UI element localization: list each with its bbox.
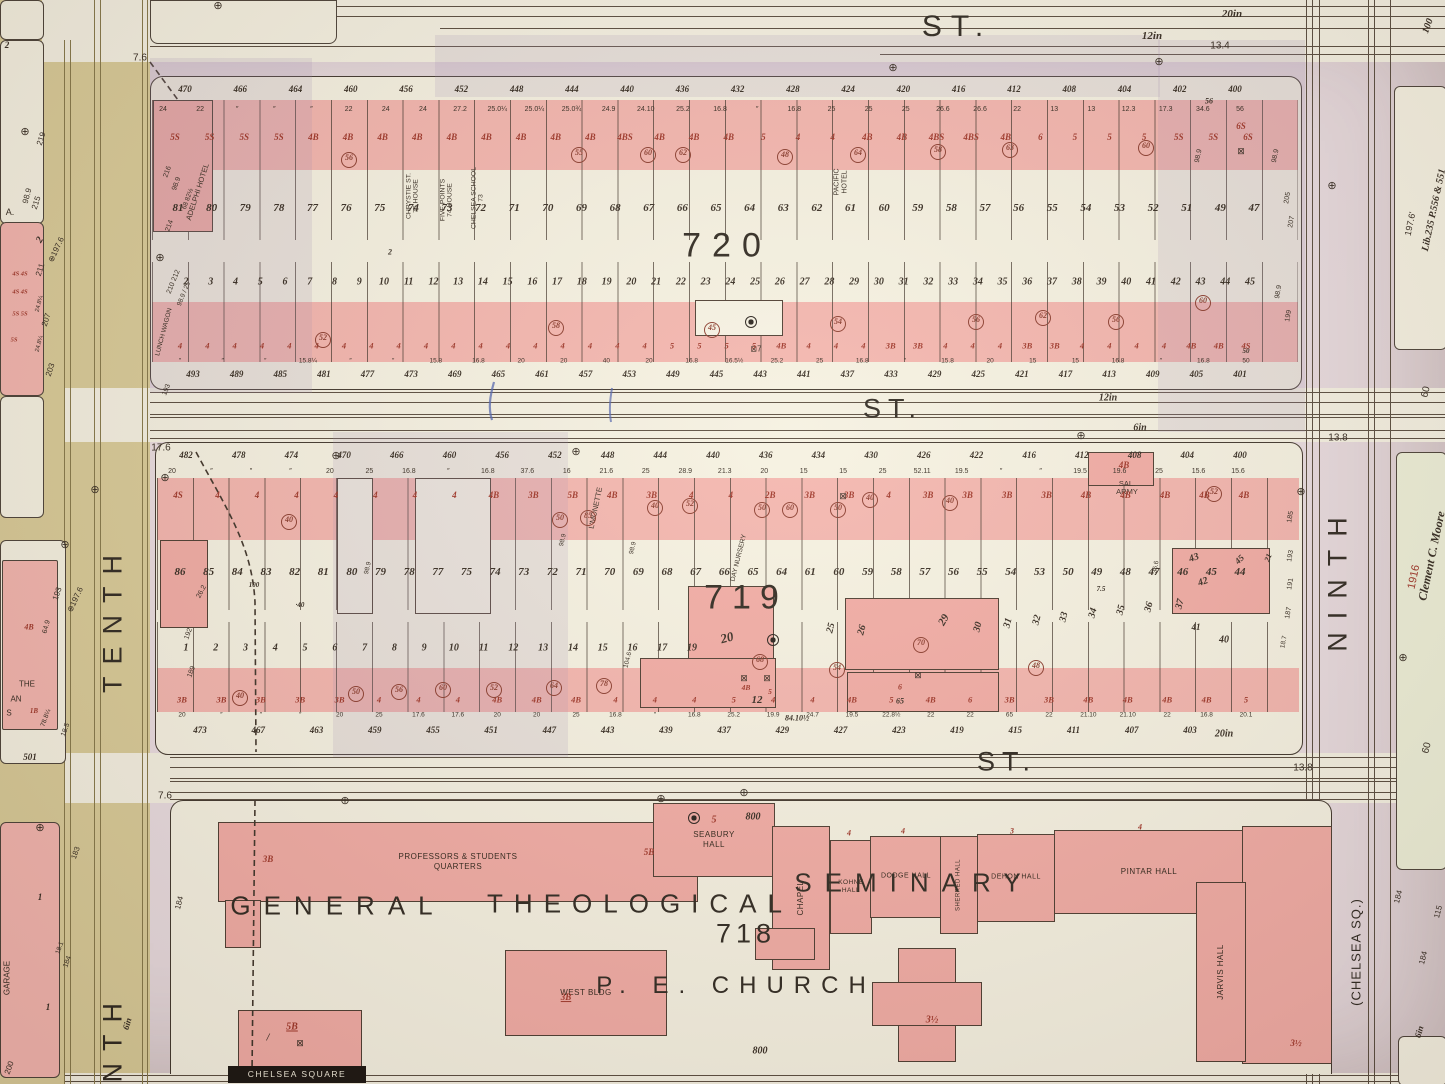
b720-story: 5S	[205, 133, 215, 143]
b720-story: 3B	[1022, 341, 1032, 350]
b719-house-number: 463	[310, 726, 324, 736]
b720-lot-width: ″	[904, 357, 906, 364]
b720-story: 4	[615, 341, 619, 350]
survey-circle-number: 60	[640, 147, 656, 163]
b720-story: 4B	[897, 133, 908, 143]
b720-lot-width: 16.8	[1197, 357, 1210, 364]
map-annotation: 3½	[1290, 1039, 1301, 1049]
b719-story: 4	[810, 695, 814, 704]
map-annotation: 41	[1192, 623, 1201, 633]
b719-story: 4	[456, 695, 460, 704]
b719-house-number: 416	[1022, 451, 1036, 461]
b719-story: 4B	[1120, 491, 1131, 501]
b719-story: 4B	[489, 491, 500, 501]
b719-house-number: 436	[759, 451, 773, 461]
b720-lot-width: 15	[1029, 357, 1036, 364]
b720-lot-number: 65	[711, 202, 722, 214]
b720-house-number: 404	[1118, 85, 1132, 95]
b719-lot-width: 16.8	[688, 711, 701, 718]
b719-story: 3B	[177, 695, 187, 704]
b719-story: 4	[886, 491, 891, 501]
b719-story: 4	[692, 695, 696, 704]
b719-lot-number: 6	[332, 643, 337, 654]
map-annotation: 6in	[1133, 423, 1146, 434]
b719-lot-number: 7	[362, 643, 367, 654]
b719-story: 3B	[335, 695, 345, 704]
chelsea-square-note: (CHELSEA SQ.)	[1349, 898, 1364, 1006]
b720-lot-number: 69	[576, 202, 587, 214]
b720-lot-number: 13	[453, 277, 463, 288]
b719-lot-width: 22	[1045, 711, 1052, 718]
map-annotation: 2	[388, 249, 392, 258]
b719-lot-number: 73	[518, 566, 529, 578]
map-annotation: A.	[6, 208, 15, 218]
map-annotation: ⊠	[296, 1039, 304, 1049]
b720-lot-number: 2	[184, 277, 189, 288]
survey-circle-number: 48	[1028, 660, 1044, 676]
b719-lot-number: 4	[273, 643, 278, 654]
b720-story: 4B	[412, 133, 423, 143]
b720-story: 4	[998, 341, 1002, 350]
map-annotation: ·40	[296, 602, 305, 610]
b719-lot-number: 11	[479, 643, 488, 654]
b720-lot-width: 16.8	[1112, 357, 1125, 364]
map-annotation: 100	[249, 582, 260, 590]
b720-lot-number: 23	[701, 277, 711, 288]
b720-lot-number: 67	[643, 202, 654, 214]
monument-crosshair-icon: ⊕	[35, 822, 44, 834]
map-annotation: 6S	[1236, 122, 1246, 132]
crossed-box-symbol: ⊠	[839, 492, 847, 502]
b720-lot-number: 58	[946, 202, 957, 214]
survey-circle-number: 45	[704, 322, 720, 338]
b720-lot-width: 25.2	[676, 106, 690, 114]
b719-house-number: 430	[864, 451, 878, 461]
b720-lot-width: 20	[517, 357, 524, 364]
b720-house-number: 440	[620, 85, 634, 95]
b719-lot-width: 28.9	[678, 468, 692, 476]
b720-house-number: 436	[676, 85, 690, 95]
b719-lot-number: 80	[346, 566, 357, 578]
survey-circle-number: 54	[829, 662, 845, 678]
b720-story: 3B	[913, 341, 923, 350]
b720-lot-number: 80	[206, 202, 217, 214]
survey-circle-number: 62	[675, 147, 691, 163]
tank-dot-symbol	[767, 634, 779, 646]
tank-dot-symbol	[688, 812, 700, 824]
b720-house-number: 449	[666, 370, 680, 380]
b720-house-number: 460	[344, 85, 358, 95]
b719-story: 4B	[607, 491, 618, 501]
b720-story: 4	[205, 341, 209, 350]
survey-circle-number: 40	[281, 514, 297, 530]
b720-story: 4B	[377, 133, 388, 143]
b720-lot-number: 55	[1047, 202, 1058, 214]
b720-lot-width: 24	[159, 106, 167, 114]
b720-lot-width: ″	[179, 357, 181, 364]
b720-lot-width: 15	[1072, 357, 1079, 364]
survey-circle-number: 40	[647, 500, 663, 516]
b719-lot-number: 83	[260, 566, 271, 578]
b719-lot-number: 3	[243, 643, 248, 654]
b720-story: 4	[369, 341, 373, 350]
b719-story: 3B	[1005, 695, 1015, 704]
b719-story: 4	[334, 491, 339, 501]
b720-story: 4B	[516, 133, 527, 143]
b719-story: 4	[377, 695, 381, 704]
survey-circle-number: 52	[486, 682, 502, 698]
b719-story: 4B	[1123, 695, 1133, 704]
b720-lot-width: ″	[221, 357, 223, 364]
b719-lot-width: 22	[927, 711, 934, 718]
b720-story: 4	[1135, 341, 1139, 350]
map-annotation: 5	[712, 815, 717, 826]
monument-crosshair-icon: ⊕	[1296, 486, 1305, 498]
b720-lot-number: 47	[1249, 202, 1260, 214]
map-annotation: 4B	[24, 624, 33, 633]
map-annotation: 1	[46, 1003, 51, 1013]
b719-lot-width: 37.6	[521, 468, 535, 476]
b720-house-number: 466	[234, 85, 248, 95]
b719-story: 4S	[173, 491, 183, 501]
b720-lot-number: 77	[307, 202, 318, 214]
b720-story: 4B	[776, 341, 786, 350]
b719-story: 4B	[1081, 491, 1092, 501]
b720-lot-width: 22	[1013, 106, 1021, 114]
seminary-name-word1: GENERAL	[230, 891, 445, 922]
b720-house-number: 416	[952, 85, 966, 95]
survey-circle-number: 63	[1002, 142, 1018, 158]
b720-house-number: 470	[178, 85, 192, 95]
map-annotation: 4S 4S	[12, 270, 27, 277]
b719-house-number: 459	[368, 726, 382, 736]
survey-circle-number: 78	[596, 678, 612, 694]
atlas-map-scan: ST. ST. ST. 720 719 718 TENTH TENTH NINT…	[0, 0, 1445, 1084]
b720-house-number: 448	[510, 85, 524, 95]
monument-crosshair-icon: ⊕	[160, 472, 169, 484]
monument-crosshair-icon: ⊕	[213, 0, 222, 12]
survey-circle-number: 60	[435, 682, 451, 698]
b719-lot-number: 17	[657, 643, 667, 654]
b719-story: 4B	[1162, 695, 1172, 704]
b719-lot-number: 85	[203, 566, 214, 578]
b719-lot-width: 21.10	[1080, 711, 1096, 718]
b720-lot-width: 16.8	[472, 357, 485, 364]
b719-house-number: 407	[1125, 726, 1139, 736]
b720-house-number: 464	[289, 85, 303, 95]
map-annotation: 3B	[263, 855, 274, 865]
b720-story: 4	[178, 341, 182, 350]
b719-lot-width: ″	[654, 711, 656, 718]
survey-circle-number: 52	[315, 332, 331, 348]
b719-story: 4	[613, 695, 617, 704]
b720-lot-number: 51	[1181, 202, 1192, 214]
survey-circle-number: 62	[1035, 310, 1051, 326]
map-annotation: 12	[752, 694, 763, 706]
b720-lot-width: 40	[603, 357, 610, 364]
b720-house-number: 493	[186, 370, 200, 380]
b720-lot-number: 53	[1114, 202, 1125, 214]
b720-house-number: 429	[928, 370, 942, 380]
map-annotation: 6	[898, 684, 902, 693]
b719-lot-number: 65	[747, 566, 758, 578]
b720-story: 5	[1073, 133, 1078, 143]
survey-circle-number: 70	[913, 637, 929, 653]
b720-lot-width: ″	[392, 357, 394, 364]
survey-circle-number: 56	[391, 684, 407, 700]
b719-lot-number: 47	[1149, 566, 1160, 578]
b719-story: 5	[732, 695, 736, 704]
survey-circle-number: 64	[850, 147, 866, 163]
b720-story: 4	[533, 341, 537, 350]
b720-story: 4	[233, 341, 237, 350]
b720-lot-number: 81	[173, 202, 184, 214]
b720-lot-width: ″	[756, 106, 758, 114]
b719-lot-width: ″	[260, 711, 262, 718]
b719-lot-number: 64	[776, 566, 787, 578]
map-annotation: 13.4	[1210, 41, 1229, 52]
b720-house-number: 413	[1102, 370, 1116, 380]
map-annotation: 5S	[11, 336, 18, 343]
b719-story: 2B	[765, 491, 776, 501]
b720-story: 6	[1038, 133, 1043, 143]
ink-mark	[490, 382, 494, 420]
b719-house-number: 411	[1067, 726, 1080, 736]
b720-lot-width: 56	[1236, 106, 1244, 114]
b720-house-number: 457	[579, 370, 593, 380]
b719-lot-number: 50	[1063, 566, 1074, 578]
b720-lot-number: 19	[602, 277, 612, 288]
b719-lot-number: 5	[303, 643, 308, 654]
b720-house-number: 477	[361, 370, 375, 380]
b719-house-number: 443	[601, 726, 615, 736]
map-annotation: 5B	[286, 1022, 298, 1033]
b719-lot-number: 66	[719, 566, 730, 578]
b719-house-number: 452	[548, 451, 562, 461]
map-annotation: 20in	[1215, 729, 1233, 740]
b720-house-number: 485	[274, 370, 288, 380]
b719-lot-number: 74	[490, 566, 501, 578]
monument-crosshair-icon: ⊕	[656, 793, 665, 805]
b719-house-number: 448	[601, 451, 615, 461]
b720-lot-width: 16.8	[713, 106, 727, 114]
b719-lot-width: 21.6	[599, 468, 613, 476]
b720-lot-width: 20	[987, 357, 994, 364]
plate-title-box: CHELSEA SQUARE	[228, 1066, 366, 1083]
b720-lot-number: 17	[552, 277, 562, 288]
b719-house-number: 456	[495, 451, 509, 461]
b720-story: 6S	[1243, 133, 1253, 143]
map-annotation: 12in	[1099, 393, 1117, 404]
map-annotation: 501	[23, 753, 37, 763]
map-annotation: 7.5	[1097, 586, 1106, 594]
b719-story: 4	[416, 695, 420, 704]
b719-lot-number: 78	[404, 566, 415, 578]
block-number-718: 718	[716, 919, 776, 950]
b720-story: 4	[561, 341, 565, 350]
survey-circle-number: 40	[942, 495, 958, 511]
b720-lot-number: 14	[478, 277, 488, 288]
b720-lot-width: 16.5½	[725, 357, 743, 364]
b720-lot-number: 35	[998, 277, 1008, 288]
b719-story: 4B	[1160, 491, 1171, 501]
b720-story: 5	[670, 341, 674, 350]
map-annotation: S	[6, 710, 11, 719]
b719-house-number: 451	[484, 726, 498, 736]
b720-lot-number: 16	[527, 277, 537, 288]
b719-lot-width: 19.5	[955, 468, 969, 476]
b720-lot-width: 13	[1050, 106, 1058, 114]
block-number-720: 720	[682, 227, 772, 266]
b720-lot-width: 24	[419, 106, 427, 114]
b719-story: 5B	[568, 491, 579, 501]
b719-story: 4B	[847, 695, 857, 704]
b720-lot-number: 33	[948, 277, 958, 288]
b720-lot-number: 62	[811, 202, 822, 214]
b719-house-number: 455	[426, 726, 440, 736]
b720-story: 4	[479, 341, 483, 350]
b720-lot-width: 17.3	[1159, 106, 1173, 114]
b719-story: 4	[413, 491, 418, 501]
b720-lot-width: ″	[310, 106, 312, 114]
b720-house-number: 405	[1190, 370, 1204, 380]
b719-lot-width: 20	[178, 711, 185, 718]
b719-house-number: 426	[917, 451, 931, 461]
b720-lot-number: 74	[408, 202, 419, 214]
b719-lot-width: 20	[336, 711, 343, 718]
b720-lot-width: 25.0¼	[525, 106, 544, 114]
b720-lot-number: 36	[1022, 277, 1032, 288]
b720-lot-width: 27.2	[453, 106, 467, 114]
b720-lot-number: 5	[258, 277, 263, 288]
b720-lot-width: 16.8	[685, 357, 698, 364]
b720-house-number: 481	[317, 370, 331, 380]
b720-lot-number: 22	[676, 277, 686, 288]
b719-story: 3B	[804, 491, 815, 501]
b720-lot-number: 56	[1013, 202, 1024, 214]
b719-lot-width: 15	[839, 468, 847, 476]
b719-house-number: 474	[285, 451, 299, 461]
map-annotation: 7.6	[158, 791, 172, 802]
b719-lot-width: ″	[210, 468, 212, 476]
street-label-lower: ST.	[977, 747, 1037, 778]
b719-lot-width: 25	[375, 711, 382, 718]
b720-story: 4B	[1186, 341, 1196, 350]
boundary-dash	[196, 452, 256, 752]
b719-lot-width: ″	[447, 468, 449, 476]
b719-house-number: 423	[892, 726, 906, 736]
b720-house-number: 409	[1146, 370, 1160, 380]
b719-lot-width: 25	[366, 468, 374, 476]
b719-house-number: 400	[1233, 451, 1247, 461]
b720-lot-number: 70	[542, 202, 553, 214]
b720-lot-number: 30	[874, 277, 884, 288]
b720-lot-width: 25.0¾	[562, 106, 581, 114]
survey-circle-number: 60	[1138, 140, 1154, 156]
b720-story: 4	[506, 341, 510, 350]
b719-lot-number: 12	[508, 643, 518, 654]
map-annotation: 800	[746, 812, 761, 823]
b719-lot-width: 17.6	[452, 711, 465, 718]
b720-story: 5	[752, 341, 756, 350]
b719-lot-width: 16.8	[402, 468, 416, 476]
b720-story: 4	[807, 341, 811, 350]
ink-mark	[610, 388, 612, 422]
b720-story: 5S	[239, 133, 249, 143]
b719-lot-width: ″	[1000, 468, 1002, 476]
b720-lot-number: 44	[1220, 277, 1230, 288]
b720-lot-number: 43	[1196, 277, 1206, 288]
b720-lot-width: 26.6	[973, 106, 987, 114]
b720-lot-width: 15.8	[941, 357, 954, 364]
b719-house-number: 460	[443, 451, 457, 461]
monument-crosshair-icon: ⊕	[20, 126, 29, 138]
survey-circle-number: 48	[777, 149, 793, 165]
b719-lot-width: 20	[326, 468, 334, 476]
b719-lot-width: 15.6	[1192, 468, 1206, 476]
b719-house-number: 434	[812, 451, 826, 461]
b720-story: 5S	[1174, 133, 1184, 143]
b719-lot-number: 81	[318, 566, 329, 578]
b719-lot-width: 25	[879, 468, 887, 476]
b719-lot-number: 86	[175, 566, 186, 578]
b719-lot-width: ″	[220, 711, 222, 718]
b720-lot-number: 20	[626, 277, 636, 288]
map-annotation: /	[267, 1033, 270, 1044]
b719-house-number: 403	[1183, 726, 1197, 736]
b719-lot-width: 19.9	[767, 711, 780, 718]
monument-crosshair-icon: ⊕	[331, 450, 340, 462]
b719-lot-width: 16	[563, 468, 571, 476]
b720-story: 5	[1107, 133, 1112, 143]
survey-circle-number: 60	[1195, 295, 1211, 311]
avenue-label-ninth: NINTH	[1323, 504, 1354, 652]
survey-circle-number: 50	[754, 502, 770, 518]
b720-lot-width: 25.2	[771, 357, 784, 364]
map-annotation: 40	[1219, 635, 1229, 646]
b720-lot-width: ″	[273, 106, 275, 114]
survey-circle-number: 54	[830, 316, 846, 332]
b719-house-number: 447	[543, 726, 557, 736]
b720-lot-number: 52	[1148, 202, 1159, 214]
monument-crosshair-icon: ⊕	[60, 539, 69, 551]
boundary-dash	[150, 62, 178, 100]
b720-story: 4B	[481, 133, 492, 143]
b719-lot-number: 75	[461, 566, 472, 578]
map-annotation: 4	[847, 830, 851, 839]
map-annotation: 56	[1205, 98, 1213, 107]
b720-house-number: 489	[230, 370, 244, 380]
b720-lot-width: 34.6	[1196, 106, 1210, 114]
b719-lot-width: 25	[1155, 468, 1163, 476]
b720-lot-number: 7	[307, 277, 312, 288]
b719-lot-width: 25	[642, 468, 650, 476]
b719-lot-width: 20.1	[1240, 711, 1253, 718]
b720-lot-number: 79	[240, 202, 251, 214]
b719-story: 4	[294, 491, 299, 501]
b720-house-number: 420	[897, 85, 911, 95]
b720-story: 4	[796, 133, 801, 143]
b719-story: 4B	[1083, 695, 1093, 704]
b720-story: 4B	[724, 133, 735, 143]
b720-lot-number: 4	[233, 277, 238, 288]
b719-story: 3B	[216, 695, 226, 704]
b720-story: 4B	[1214, 341, 1224, 350]
b720-house-number: 421	[1015, 370, 1029, 380]
survey-circle-number: 52	[1206, 486, 1222, 502]
b720-story: 4BS	[963, 133, 979, 143]
b719-lot-width: 16.8	[609, 711, 622, 718]
